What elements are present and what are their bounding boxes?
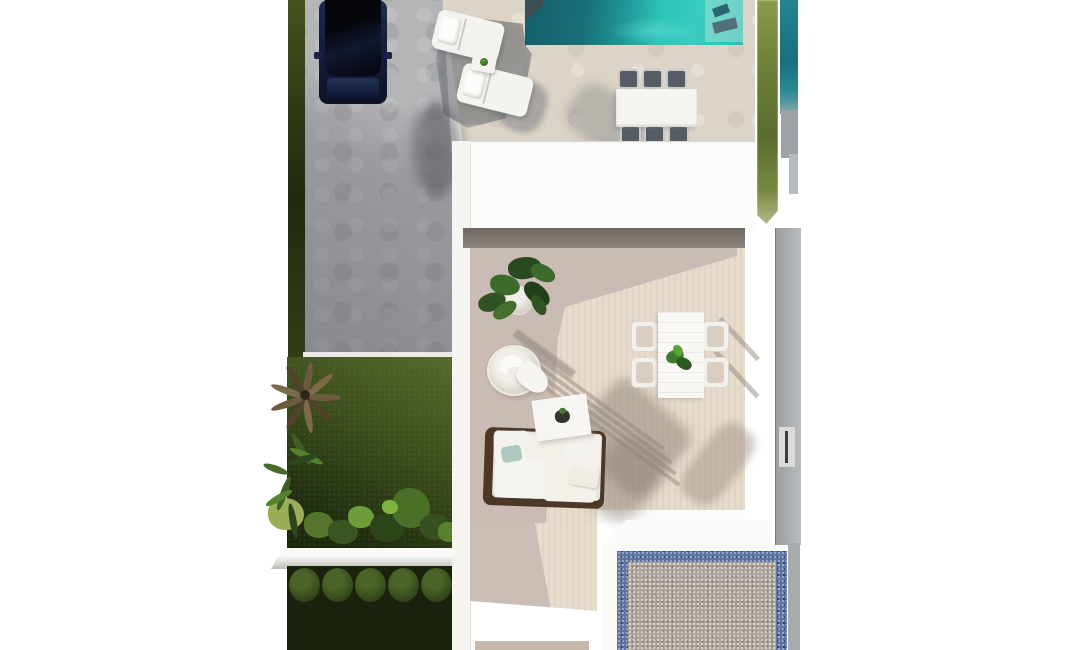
terrace-dining-chair: [702, 357, 729, 388]
chair-seat: [707, 362, 724, 383]
pool-dining-chair: [618, 69, 639, 89]
neighbor-pool-strip: [780, 0, 798, 114]
grass-strip-right: [757, 0, 778, 224]
terrace-dining-set: [628, 310, 733, 402]
topiary-bush: [289, 568, 320, 602]
topiary-hedge-row: [287, 566, 452, 650]
topiary-bush: [421, 568, 452, 602]
potted-plant-small: [479, 57, 488, 66]
side-table: [470, 50, 497, 74]
terrace-bottom-step: [475, 641, 589, 650]
swimming-pool: [525, 0, 743, 45]
chair-seat: [636, 362, 653, 383]
coffee-table: [531, 393, 591, 441]
palm-tree: [264, 358, 350, 434]
topiary-bush: [322, 568, 353, 602]
terrace-lower-shadow: [470, 523, 597, 615]
car-hood: [327, 78, 379, 98]
palm-trunk-top: [300, 390, 310, 400]
terrace-dining-chair: [631, 357, 658, 388]
topiary-bush: [388, 568, 419, 602]
sofa-cushions: [492, 430, 602, 501]
shrub: [382, 500, 398, 514]
wall-niche: [779, 427, 795, 467]
east-wall-lower: [788, 543, 800, 650]
car-roof-glass: [325, 0, 381, 76]
terrace-back-wall-shadow: [463, 228, 745, 248]
pool-dining-chair: [666, 69, 687, 89]
gravel-patio-border: [617, 551, 787, 650]
car-mirror: [384, 52, 392, 59]
chair-seat: [707, 326, 724, 347]
pool-dining-table: [616, 89, 697, 127]
east-boundary-wall: [775, 228, 801, 545]
fern-frond: [262, 461, 289, 476]
house-roof: [453, 141, 755, 229]
pool-water-highlight: [608, 18, 695, 43]
west-boundary-wall: [452, 141, 471, 650]
parked-car: [317, 0, 389, 106]
wall-niche-slit: [785, 431, 788, 463]
neighbor-wall: [789, 154, 798, 194]
terrace-dining-chair: [631, 321, 658, 352]
neighbor-wall: [781, 110, 798, 158]
topiary-bush: [355, 568, 386, 602]
terrace-dining-chair: [702, 321, 729, 352]
terrace-lower: [470, 523, 597, 615]
potted-plant: [478, 255, 562, 335]
gravel-patio: [628, 562, 776, 650]
chair-seat: [636, 326, 653, 347]
aerial-villa-render: [0, 0, 1070, 650]
pool-dining-chair: [642, 69, 663, 89]
grass-strip-left: [288, 0, 305, 360]
sofa-seat-cushion: [494, 457, 545, 499]
car-mirror: [314, 52, 322, 59]
